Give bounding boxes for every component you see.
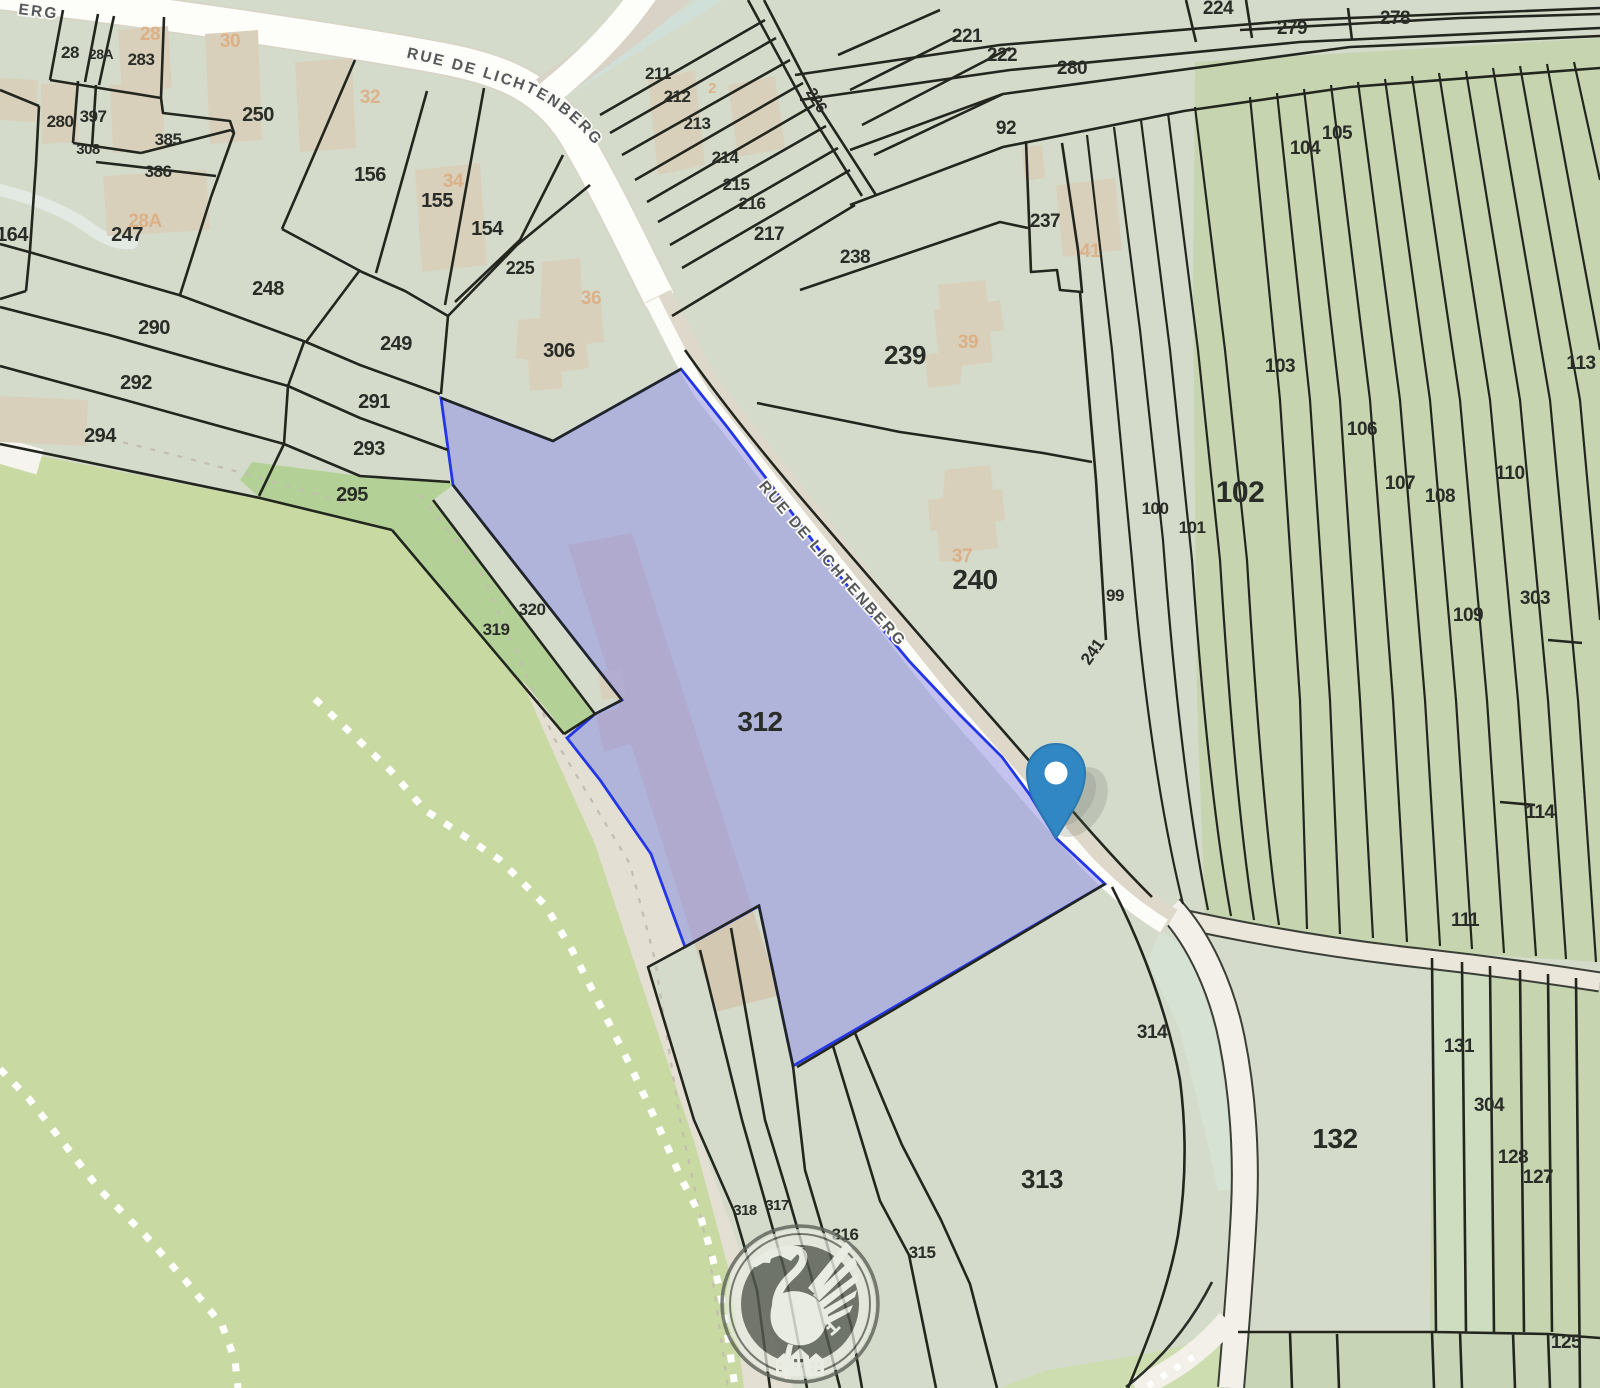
svg-text:102: 102 bbox=[1216, 476, 1265, 509]
svg-text:212: 212 bbox=[664, 87, 691, 106]
svg-text:92: 92 bbox=[996, 118, 1016, 139]
svg-text:39: 39 bbox=[958, 332, 978, 353]
svg-text:125: 125 bbox=[1551, 1332, 1582, 1353]
svg-text:221: 221 bbox=[952, 26, 983, 47]
svg-text:28: 28 bbox=[140, 24, 160, 45]
svg-text:315: 315 bbox=[909, 1243, 936, 1262]
svg-text:213: 213 bbox=[684, 114, 711, 133]
svg-text:215: 215 bbox=[723, 175, 750, 194]
svg-text:107: 107 bbox=[1385, 473, 1415, 494]
svg-text:114: 114 bbox=[1525, 802, 1555, 823]
svg-text:320: 320 bbox=[519, 600, 546, 619]
svg-text:103: 103 bbox=[1265, 356, 1295, 377]
svg-text:303: 303 bbox=[1520, 588, 1550, 609]
svg-text:292: 292 bbox=[120, 372, 152, 394]
svg-text:294: 294 bbox=[84, 425, 117, 447]
svg-text:291: 291 bbox=[358, 391, 390, 413]
svg-text:127: 127 bbox=[1523, 1167, 1553, 1188]
svg-text:240: 240 bbox=[952, 564, 997, 595]
svg-text:293: 293 bbox=[353, 438, 385, 460]
svg-text:105: 105 bbox=[1322, 123, 1353, 144]
svg-text:222: 222 bbox=[987, 45, 1017, 66]
svg-text:128: 128 bbox=[1498, 1147, 1528, 1168]
svg-text:132: 132 bbox=[1312, 1123, 1357, 1154]
svg-text:36: 36 bbox=[581, 288, 601, 309]
svg-text:104: 104 bbox=[1290, 138, 1321, 159]
svg-text:2: 2 bbox=[708, 80, 716, 97]
svg-text:37: 37 bbox=[952, 546, 972, 567]
svg-text:250: 250 bbox=[242, 104, 274, 126]
svg-text:238: 238 bbox=[840, 247, 870, 268]
svg-text:318: 318 bbox=[733, 1202, 757, 1219]
svg-text:225: 225 bbox=[506, 258, 535, 278]
svg-text:248: 248 bbox=[252, 278, 284, 300]
svg-text:317: 317 bbox=[765, 1197, 789, 1214]
svg-text:156: 156 bbox=[354, 164, 386, 186]
svg-text:214: 214 bbox=[712, 148, 740, 167]
svg-text:283: 283 bbox=[128, 50, 155, 69]
svg-text:319: 319 bbox=[483, 620, 510, 639]
svg-text:217: 217 bbox=[754, 224, 784, 245]
svg-text:131: 131 bbox=[1444, 1036, 1475, 1057]
svg-text:108: 108 bbox=[1425, 486, 1455, 507]
svg-text:304: 304 bbox=[1474, 1095, 1505, 1116]
svg-text:216: 216 bbox=[739, 194, 766, 213]
svg-text:239: 239 bbox=[884, 340, 926, 370]
svg-text:164: 164 bbox=[0, 224, 29, 246]
svg-text:280: 280 bbox=[47, 112, 74, 131]
svg-text:314: 314 bbox=[1137, 1022, 1168, 1043]
svg-text:41: 41 bbox=[1080, 241, 1101, 262]
svg-text:101: 101 bbox=[1179, 518, 1206, 537]
svg-text:397: 397 bbox=[80, 107, 107, 126]
svg-text:30: 30 bbox=[220, 31, 240, 52]
svg-text:28A: 28A bbox=[89, 46, 114, 62]
svg-text:110: 110 bbox=[1495, 463, 1524, 484]
svg-text:111: 111 bbox=[1451, 910, 1480, 931]
svg-text:313: 313 bbox=[1021, 1164, 1063, 1194]
svg-text:155: 155 bbox=[421, 190, 453, 212]
svg-text:109: 109 bbox=[1453, 605, 1483, 626]
svg-text:386: 386 bbox=[145, 162, 172, 181]
svg-text:308: 308 bbox=[76, 141, 100, 158]
svg-text:249: 249 bbox=[380, 333, 412, 355]
svg-text:306: 306 bbox=[543, 340, 575, 362]
svg-text:32: 32 bbox=[360, 87, 380, 108]
svg-text:28A: 28A bbox=[128, 211, 162, 232]
svg-text:279: 279 bbox=[1277, 18, 1307, 39]
svg-text:312: 312 bbox=[737, 706, 782, 737]
svg-text:290: 290 bbox=[138, 317, 170, 339]
svg-text:280: 280 bbox=[1057, 58, 1087, 79]
svg-text:278: 278 bbox=[1380, 8, 1410, 29]
svg-text:34: 34 bbox=[443, 171, 464, 192]
svg-text:106: 106 bbox=[1347, 419, 1377, 440]
svg-text:100: 100 bbox=[1142, 499, 1169, 518]
svg-text:385: 385 bbox=[155, 130, 182, 149]
svg-text:154: 154 bbox=[471, 218, 504, 240]
svg-text:28: 28 bbox=[61, 43, 79, 62]
svg-text:295: 295 bbox=[336, 484, 368, 506]
svg-text:224: 224 bbox=[1203, 0, 1234, 19]
svg-text:237: 237 bbox=[1030, 211, 1060, 232]
svg-text:211: 211 bbox=[645, 64, 671, 83]
svg-text:113: 113 bbox=[1566, 353, 1595, 374]
svg-text:99: 99 bbox=[1106, 586, 1124, 605]
